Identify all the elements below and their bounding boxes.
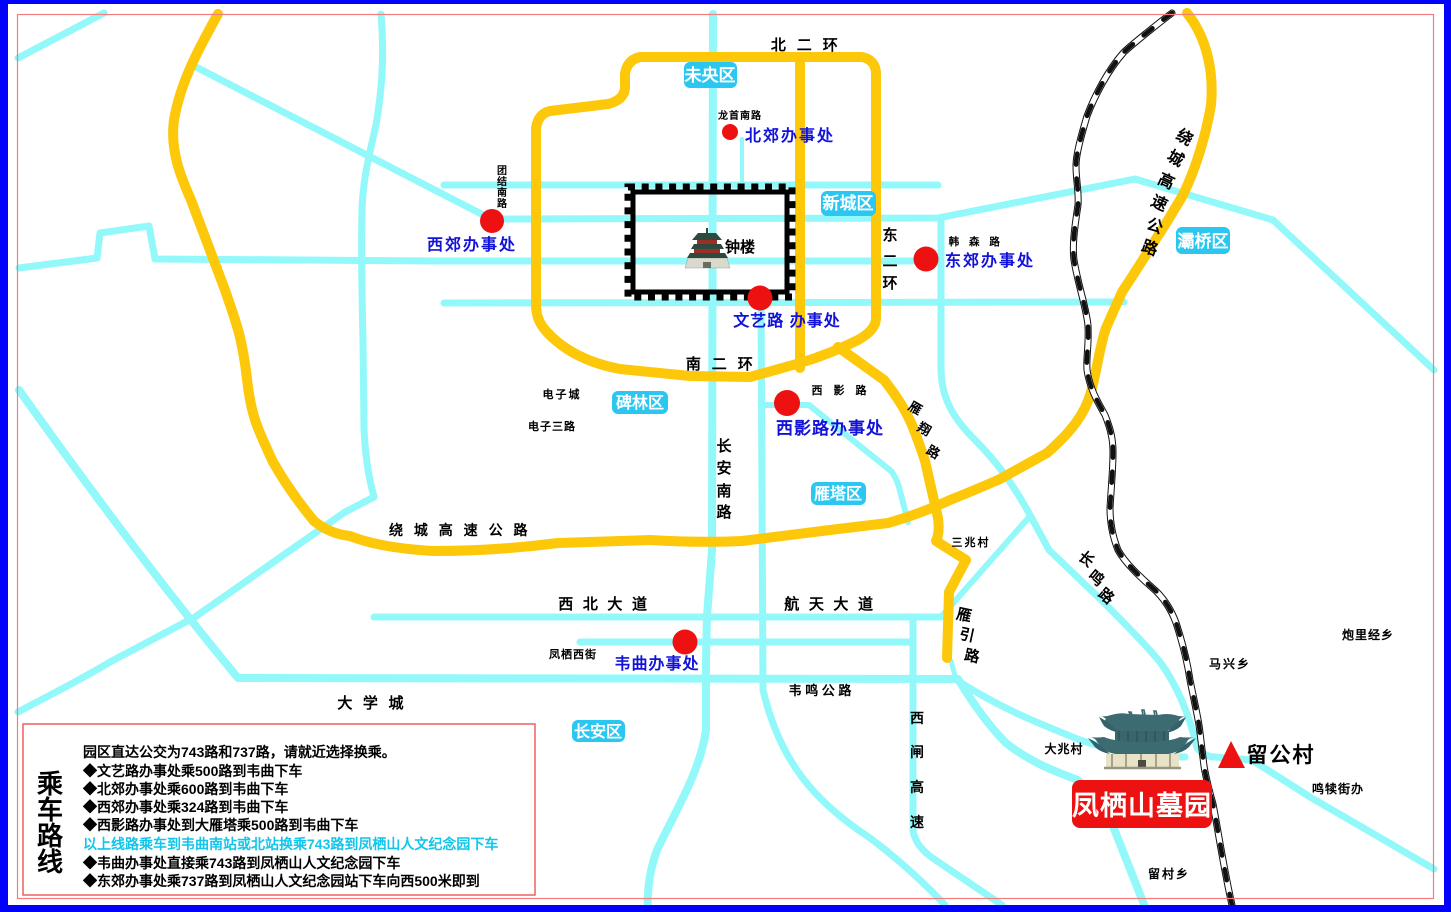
svg-text:西郊办事处: 西郊办事处 <box>427 235 517 254</box>
svg-text:闸: 闸 <box>910 744 924 760</box>
svg-text:龙首南路: 龙首南路 <box>717 109 762 122</box>
svg-text:◆东郊办事处乘737路到凤栖山人文纪念园站下车向西500米即: ◆东郊办事处乘737路到凤栖山人文纪念园站下车向西500米即到 <box>82 873 480 889</box>
svg-text:结: 结 <box>497 175 507 188</box>
svg-text:◆北郊办事处乘600路到韦曲下车: ◆北郊办事处乘600路到韦曲下车 <box>82 781 288 797</box>
svg-text:团: 团 <box>497 165 507 177</box>
svg-text:北 二 环: 北 二 环 <box>771 37 841 54</box>
svg-text:西: 西 <box>910 710 924 726</box>
svg-text:大兆村: 大兆村 <box>1044 741 1083 756</box>
svg-text:三兆村: 三兆村 <box>952 535 991 549</box>
svg-text:东: 东 <box>882 226 897 244</box>
svg-text:西 影 路: 西 影 路 <box>811 383 870 397</box>
svg-text:园区直达公交为743路和737路，请就近选择换乘。: 园区直达公交为743路和737路，请就近选择换乘。 <box>83 744 396 760</box>
svg-text:长: 长 <box>716 437 732 455</box>
svg-text:南: 南 <box>716 482 731 500</box>
svg-text:线: 线 <box>37 847 63 877</box>
svg-text:电子城: 电子城 <box>543 387 582 401</box>
svg-text:鸣犊街办: 鸣犊街办 <box>1312 781 1364 796</box>
svg-text:西影路办事处: 西影路办事处 <box>776 418 884 438</box>
svg-text:路: 路 <box>716 503 732 521</box>
svg-text:◆西郊办事处乘324路到韦曲下车: ◆西郊办事处乘324路到韦曲下车 <box>82 799 288 815</box>
svg-text:韦 鸣 公 路: 韦 鸣 公 路 <box>789 683 853 698</box>
svg-text:碑林区: 碑林区 <box>616 393 664 412</box>
svg-text:马兴乡: 马兴乡 <box>1209 656 1251 671</box>
svg-text:东郊办事处: 东郊办事处 <box>945 251 1035 270</box>
svg-text:钟楼: 钟楼 <box>725 238 755 256</box>
svg-text:灞桥区: 灞桥区 <box>1178 231 1229 251</box>
svg-text:◆韦曲办事处直接乘743路到凤栖山人文纪念园下车: ◆韦曲办事处直接乘743路到凤栖山人文纪念园下车 <box>82 855 400 871</box>
svg-text:速: 速 <box>910 814 924 830</box>
svg-text:韩 森 路: 韩 森 路 <box>949 235 1004 248</box>
svg-text:留公村: 留公村 <box>1247 743 1316 767</box>
svg-text:路: 路 <box>497 197 508 210</box>
svg-text:◆文艺路办事处乘500路到韦曲下车: ◆文艺路办事处乘500路到韦曲下车 <box>82 763 302 779</box>
svg-text:二: 二 <box>882 253 897 270</box>
svg-text:大 学 城: 大 学 城 <box>337 694 406 712</box>
svg-text:韦曲办事处: 韦曲办事处 <box>614 654 699 673</box>
svg-text:凤栖山墓园: 凤栖山墓园 <box>1072 791 1212 821</box>
svg-text:电子三路: 电子三路 <box>528 419 576 433</box>
svg-text:◆西影路办事处到大雁塔乘500路到韦曲下车: ◆西影路办事处到大雁塔乘500路到韦曲下车 <box>82 817 358 833</box>
svg-text:绕 城 高 速 公 路: 绕 城 高 速 公 路 <box>389 522 531 538</box>
svg-text:南 二 环: 南 二 环 <box>686 355 756 373</box>
svg-text:以上线路乘车到韦曲南站或北站换乘743路到凤栖山人文纪念园下: 以上线路乘车到韦曲南站或北站换乘743路到凤栖山人文纪念园下车 <box>83 836 498 852</box>
svg-text:长安区: 长安区 <box>574 722 622 741</box>
svg-text:安: 安 <box>716 459 731 477</box>
svg-text:雁塔区: 雁塔区 <box>814 484 862 503</box>
svg-text:凤栖西街: 凤栖西街 <box>549 647 597 661</box>
svg-text:炮里经乡: 炮里经乡 <box>1342 627 1394 642</box>
svg-text:南: 南 <box>497 186 507 199</box>
svg-text:文艺路 办事处: 文艺路 办事处 <box>733 311 840 330</box>
svg-text:高: 高 <box>910 779 924 795</box>
svg-text:环: 环 <box>882 275 897 292</box>
svg-text:未央区: 未央区 <box>684 65 736 85</box>
svg-text:留村乡: 留村乡 <box>1148 866 1190 881</box>
svg-text:西 北 大 道: 西 北 大 道 <box>558 595 649 613</box>
svg-text:航 天 大 道: 航 天 大 道 <box>784 595 875 613</box>
svg-text:新城区: 新城区 <box>823 193 874 213</box>
svg-text:北郊办事处: 北郊办事处 <box>745 126 835 145</box>
